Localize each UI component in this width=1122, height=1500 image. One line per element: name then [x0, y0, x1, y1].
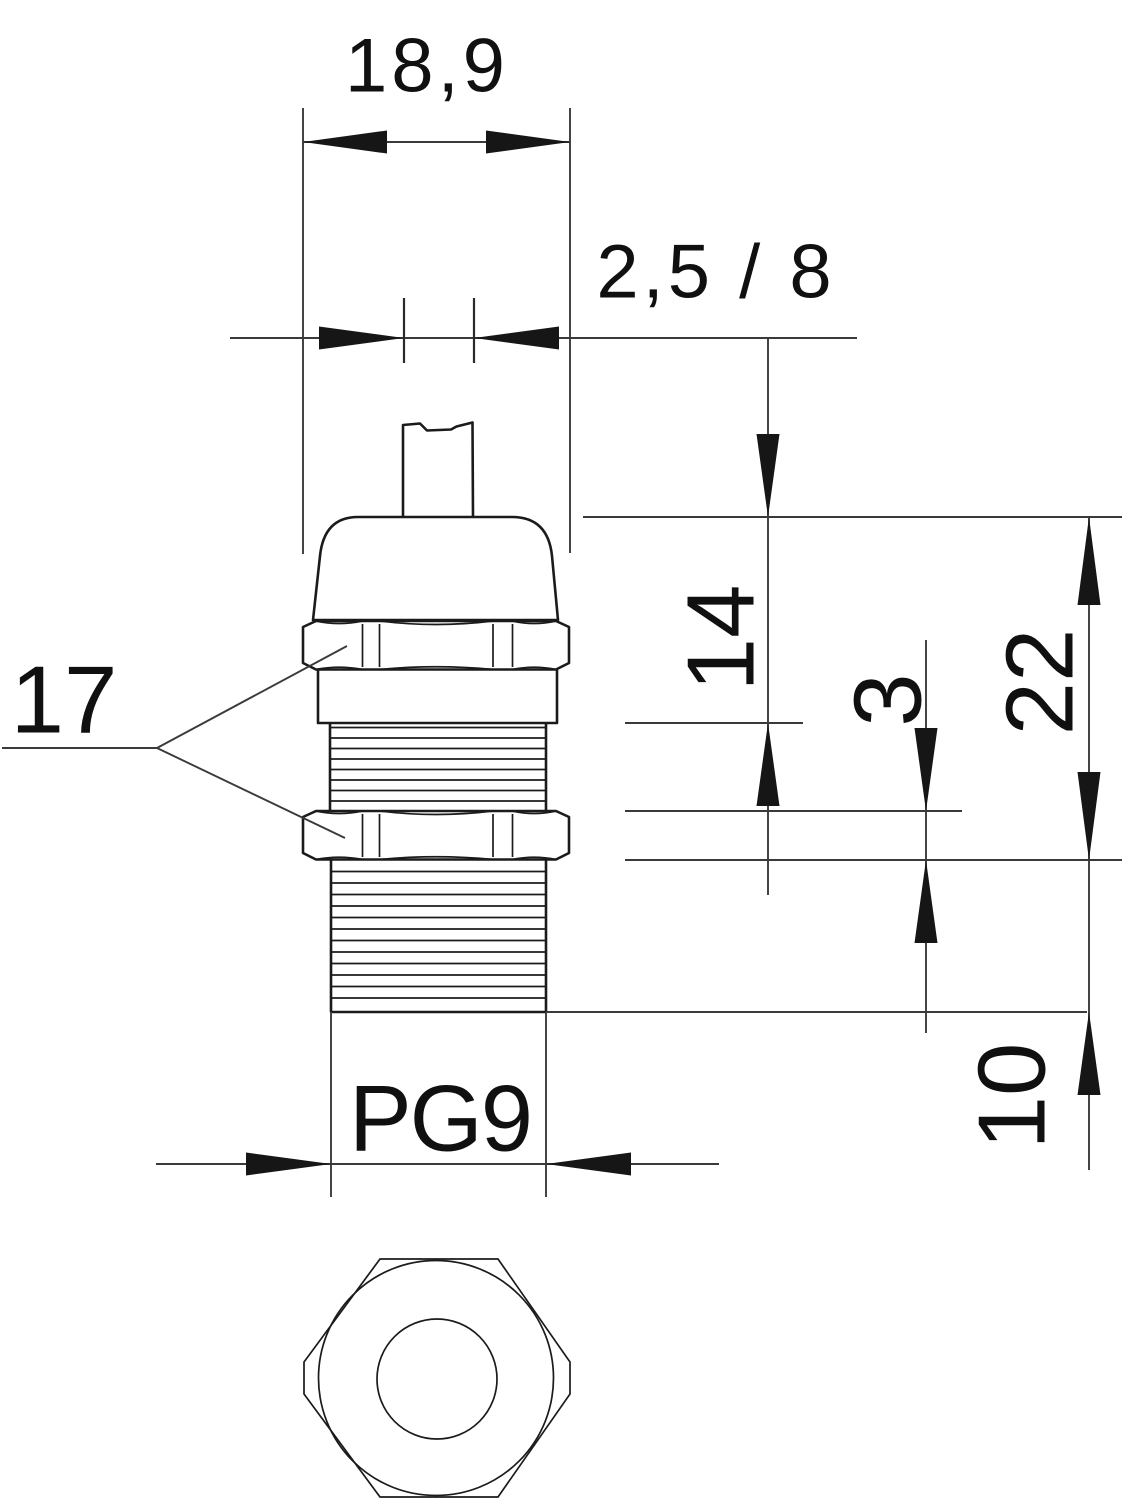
arrowhead-down — [915, 728, 938, 811]
upper-thread — [330, 723, 546, 811]
dim-overall-width: 18,9 — [303, 24, 570, 555]
arrowhead-right-pointing — [246, 1153, 331, 1176]
dim-label-pg9: PG9 — [349, 1066, 531, 1171]
dim-label-clamping-range: 2,5 / 8 — [596, 230, 835, 315]
bottom-view — [304, 1259, 570, 1497]
lower-hex-chamfer-arcs — [316, 811, 556, 860]
arrowhead-down — [1078, 772, 1101, 860]
upper-thread-crests — [330, 728, 546, 802]
dim-label-3: 3 — [835, 673, 942, 726]
lower-hex-nut-outline — [303, 811, 569, 860]
lower-thread — [331, 860, 546, 1012]
arrowhead-down — [757, 434, 780, 517]
arrowhead-right-pointing — [319, 327, 404, 350]
callout-wrench-17: 17 — [2, 646, 347, 838]
cable-pin — [403, 423, 473, 518]
lower-hex-nut — [303, 811, 569, 860]
collar — [318, 670, 557, 723]
dim-label-22: 22 — [987, 629, 1094, 736]
side-view — [303, 423, 569, 1013]
arrowhead-up — [757, 723, 780, 806]
dim-label-14: 14 — [668, 585, 775, 692]
leader-line-lower-nut — [157, 748, 345, 838]
arrowhead-up — [1078, 1012, 1101, 1095]
arrowhead-right — [486, 131, 570, 154]
bore-circle — [377, 1319, 497, 1439]
dimensions: 18,9 2,5 / 8 14 3 — [2, 24, 1122, 1198]
lower-thread-crests — [331, 872, 546, 999]
technical-drawing: 18,9 2,5 / 8 14 3 — [0, 0, 1122, 1500]
dim-clamping-range: 2,5 / 8 — [230, 230, 857, 364]
hexagon-outline — [304, 1259, 570, 1497]
dim-label-overall-width: 18,9 — [345, 24, 509, 109]
arrowhead-left — [303, 131, 387, 154]
arrowhead-left-pointing — [546, 1153, 631, 1176]
dome-cap — [313, 517, 558, 620]
arrowhead-left-pointing — [474, 327, 559, 350]
dim-locknut-3: 3 — [835, 640, 942, 1033]
dim-label-17: 17 — [11, 647, 118, 754]
dim-thread-pg9: PG9 — [156, 1012, 719, 1197]
upper-hex-nut-outline — [303, 621, 569, 670]
upper-hex-chamfer-arcs — [316, 621, 556, 670]
arrowhead-up — [1078, 517, 1101, 605]
upper-hex-nut — [303, 621, 569, 670]
dim-label-10: 10 — [959, 1043, 1066, 1150]
arrowhead-up — [915, 860, 938, 943]
dim-height-22-and-10: 22 10 — [959, 517, 1101, 1170]
